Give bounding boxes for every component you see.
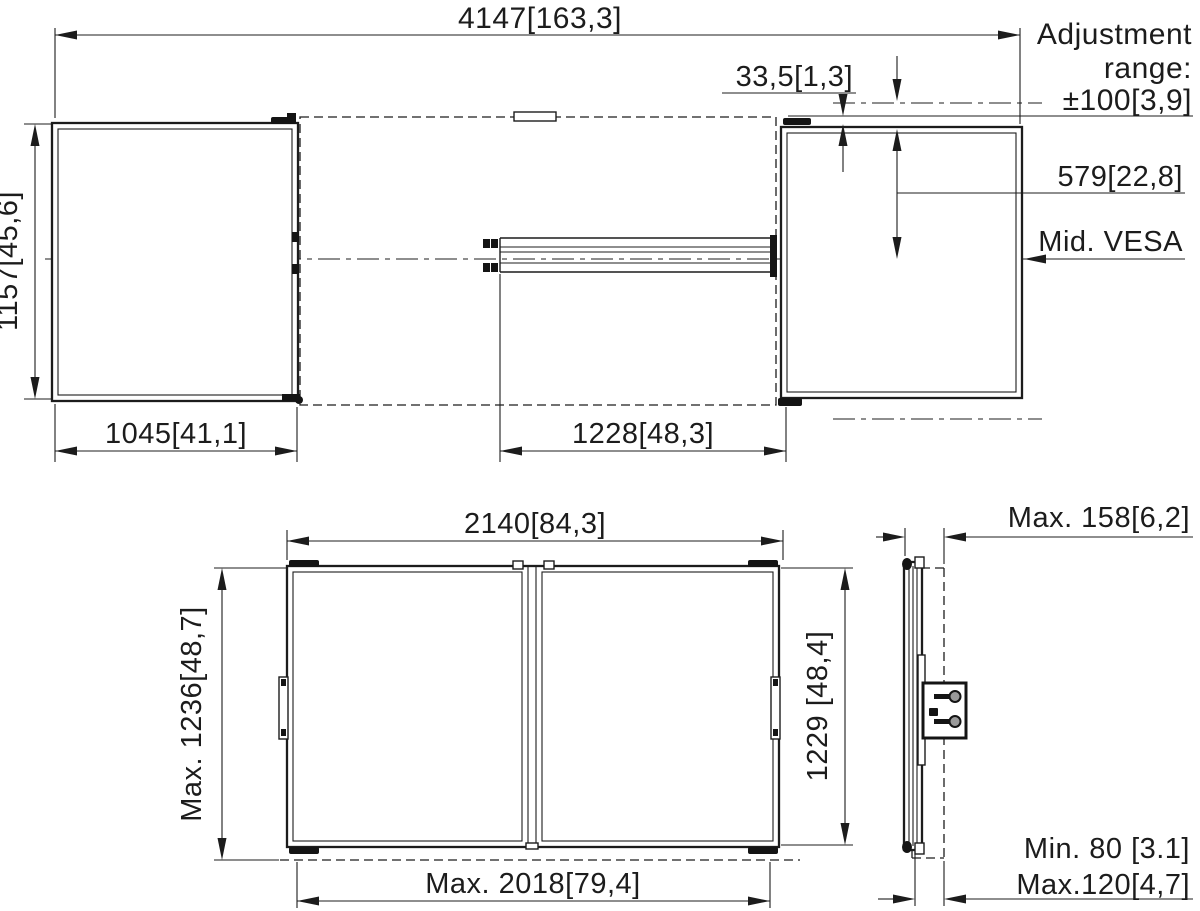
left-display <box>52 113 303 404</box>
adjustment-range-label-line2: range: <box>1104 52 1192 85</box>
side-bottom-bracket <box>915 843 924 854</box>
dim-rail-span-label: 1228[48,3] <box>572 418 714 450</box>
right-display-bottom-clamp <box>778 398 802 406</box>
adjustment-range-label-line1: Adjustment <box>1037 18 1192 51</box>
rail-bolt <box>483 239 490 248</box>
board-clamp-top-left <box>289 560 319 567</box>
dim-wall-distance-max-label: Max.120[4,7] <box>1016 869 1190 901</box>
board-clamp-bottom-left <box>289 847 319 854</box>
side-bottom-clamp <box>902 841 912 853</box>
left-display-bottom-clamp-bolt <box>295 396 303 404</box>
dim-total-width-label: 4147[163,3] <box>458 2 622 35</box>
left-display-top-clamp-hook <box>287 113 296 119</box>
vesa-hook <box>929 708 938 716</box>
right-display-bezel <box>781 127 1022 398</box>
board-clamp-bottom-right <box>748 847 778 854</box>
dim-board-width-label: 2140[84,3] <box>464 508 606 540</box>
dim-board-height-label: 1229 [48,4] <box>802 631 834 782</box>
left-display-bezel <box>52 123 298 401</box>
left-display-rail-mount-lower <box>292 264 299 274</box>
dim-display-height-label: 1157[45,6] <box>0 191 24 331</box>
wall-rail-connector <box>514 112 556 121</box>
technical-drawing: 4147[163,3] 33,5[1,3] Adjustment range: … <box>0 0 1200 911</box>
dim-top-to-vesa-label: 579[22,8] <box>1058 161 1183 193</box>
right-display-top-clamp-bolt <box>787 118 793 124</box>
board-frame <box>287 566 779 847</box>
dim-max-height-label: Max. 1236[48,7] <box>176 606 208 821</box>
side-top-bracket <box>915 557 924 568</box>
board-side-clamp-right <box>771 677 780 739</box>
dim-wall-distance-min-label: Min. 80 [3.1] <box>1024 833 1190 865</box>
technical-drawing-page: 4147[163,3] 33,5[1,3] Adjustment range: … <box>0 0 1200 911</box>
side-top-clamp <box>902 558 912 570</box>
rail-end-cap <box>770 235 777 277</box>
mid-vesa-label: Mid. VESA <box>1038 226 1183 258</box>
rail-bolt <box>491 239 498 248</box>
dim-max-depth-label: Max. 158[6,2] <box>1008 502 1190 534</box>
left-display-rail-mount-upper <box>292 232 299 242</box>
adjustment-range-value: ±100[3,9] <box>1063 84 1192 117</box>
dim-bracket-offset-label: 33,5[1,3] <box>736 61 853 93</box>
vesa-bolt-head-lower <box>950 716 961 727</box>
board-center-bolt-right <box>544 561 554 569</box>
right-display <box>778 118 1022 406</box>
board-center-bolt-bottom <box>526 843 538 849</box>
dim-display-width-label: 1045[41,1] <box>105 418 247 450</box>
rail-bolt <box>483 263 490 272</box>
dim-max-inner-width-label: Max. 2018[79,4] <box>425 868 640 900</box>
mid-vesa-leader: Mid. VESA <box>1024 226 1185 264</box>
board-center-bolt-left <box>513 561 523 569</box>
board-side-clamp-left <box>279 677 288 739</box>
board-clamp-top-right <box>748 560 778 567</box>
vesa-bolt-head-upper <box>950 691 961 702</box>
rail-bolt <box>491 263 498 272</box>
